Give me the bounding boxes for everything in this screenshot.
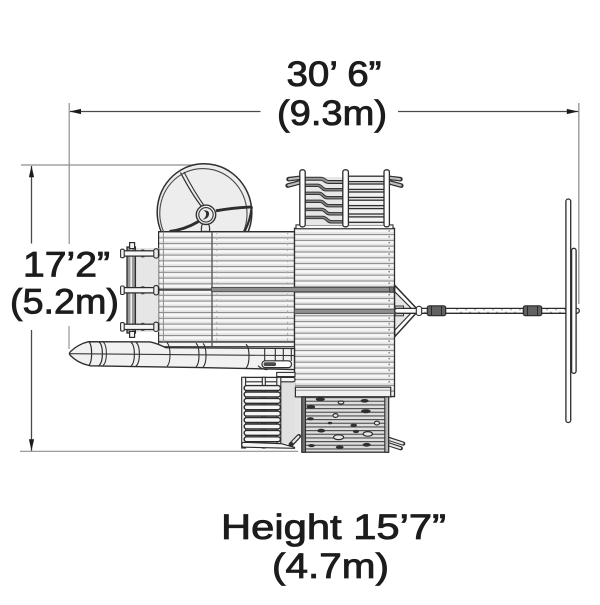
svg-text:(9.3m): (9.3m): [277, 94, 387, 133]
svg-text:17’2”: 17’2”: [23, 246, 110, 285]
svg-text:(4.7m): (4.7m): [272, 547, 389, 586]
svg-text:(5.2m): (5.2m): [10, 283, 119, 322]
svg-text:Height 15’7”: Height 15’7”: [221, 508, 446, 547]
svg-text:30’ 6”: 30’ 6”: [287, 55, 382, 94]
